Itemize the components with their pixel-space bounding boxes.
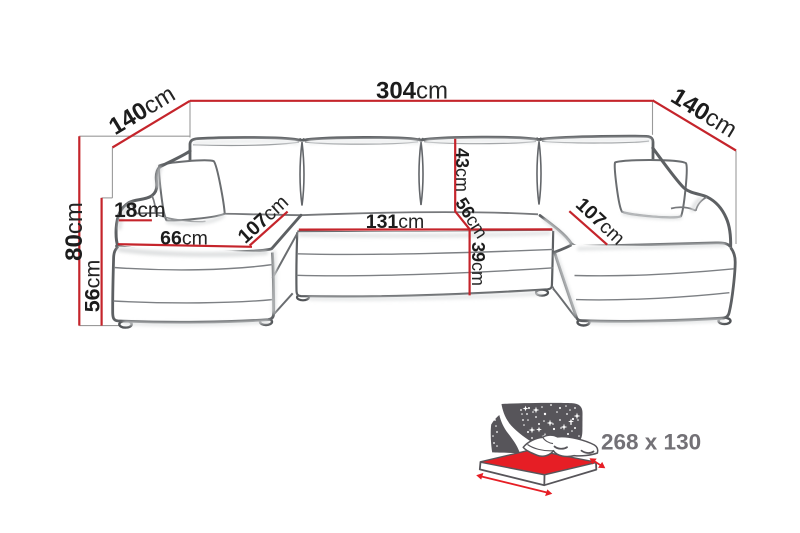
svg-text:131cm: 131cm [366,211,425,233]
svg-text:56cm: 56cm [81,260,105,313]
svg-text:39cm: 39cm [468,242,488,286]
svg-text:304cm: 304cm [376,78,448,105]
svg-text:80cm: 80cm [61,202,88,261]
svg-text:18cm: 18cm [114,199,165,222]
svg-text:43cm: 43cm [452,148,472,192]
svg-text:268 x 130: 268 x 130 [601,430,701,455]
svg-text:66cm: 66cm [160,228,208,250]
